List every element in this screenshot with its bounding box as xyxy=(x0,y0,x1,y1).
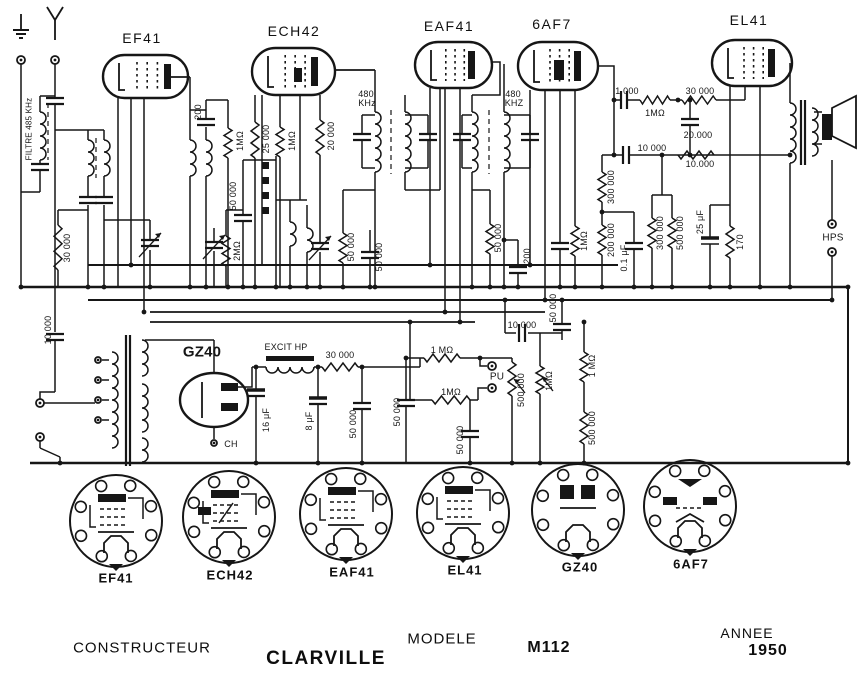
socket-keyway xyxy=(334,529,358,546)
tube-envelope xyxy=(252,48,335,95)
junction-dot xyxy=(788,285,793,290)
component-label: 0.1 μF xyxy=(619,245,629,272)
socket-pin xyxy=(76,530,87,541)
junction-dot xyxy=(316,461,321,466)
junction-dot xyxy=(408,320,413,325)
junction-dot xyxy=(360,365,365,370)
junction-dot xyxy=(58,461,63,466)
resistor xyxy=(571,226,579,256)
junction-dot xyxy=(305,285,310,290)
component-label: 10.000 xyxy=(508,320,537,330)
filled-element xyxy=(262,162,269,169)
component-label: 50 000 xyxy=(548,294,558,323)
junction-dot xyxy=(428,263,433,268)
junction-dot xyxy=(478,356,483,361)
filled-element xyxy=(266,356,314,361)
socket-pin xyxy=(472,542,483,553)
junction-dot xyxy=(503,298,508,303)
socket-pin xyxy=(587,539,598,550)
socket-pin xyxy=(558,540,569,551)
component-label: 1 MΩ xyxy=(431,345,454,355)
terminal-center xyxy=(54,59,57,62)
component-label: 50 000 xyxy=(493,224,503,253)
socket-label-el41: EL41 xyxy=(447,563,482,578)
filled-element xyxy=(328,487,356,495)
component-label: 200 000 xyxy=(606,223,616,257)
junction-dot xyxy=(373,285,378,290)
socket-pin xyxy=(145,501,156,512)
socket-pin xyxy=(492,493,503,504)
schematic-canvas: FILTRE 485 KHz30 00010 0002001MΩ25 0001M… xyxy=(0,0,868,691)
filled-element xyxy=(221,383,238,391)
coil xyxy=(142,384,148,432)
junction-dot xyxy=(360,461,365,466)
junction-dot xyxy=(86,285,91,290)
junction-dot xyxy=(458,320,463,325)
component-label: 10 000 xyxy=(43,316,53,345)
wire xyxy=(320,498,326,520)
component-label: 1 000 xyxy=(615,86,639,96)
component-label: 30 000 xyxy=(326,350,355,360)
socket-pin xyxy=(258,497,269,508)
socket-keyway xyxy=(451,528,475,545)
junction-dot xyxy=(632,285,637,290)
terminal-center xyxy=(491,387,494,390)
wire xyxy=(40,448,60,457)
socket-pin xyxy=(538,519,549,530)
junction-dot xyxy=(612,98,617,103)
coil xyxy=(266,367,314,373)
terminal-center xyxy=(97,379,100,382)
component-label: 170 xyxy=(735,234,745,250)
junction-dot xyxy=(254,461,259,466)
resistor xyxy=(424,354,460,362)
wire xyxy=(478,388,487,400)
junction-dot xyxy=(288,285,293,290)
junction-dot xyxy=(846,461,851,466)
component-label: EXCIT HP xyxy=(265,342,308,352)
component-label: 20 000 xyxy=(326,122,336,151)
socket-outline-el41 xyxy=(417,467,509,559)
filled-element xyxy=(98,494,126,502)
socket-pin xyxy=(238,546,249,557)
junction-dot xyxy=(188,285,193,290)
socket-pin xyxy=(188,497,199,508)
junction-dot xyxy=(558,285,563,290)
socket-keyway xyxy=(217,532,241,549)
component-label: 8 μF xyxy=(304,412,314,431)
socket-pin xyxy=(355,543,366,554)
socket-pin xyxy=(326,544,337,555)
year-value: 1950 xyxy=(748,642,788,660)
component-label: 20.000 xyxy=(684,130,713,140)
component-label: 50 000 xyxy=(392,398,402,427)
socket-pin xyxy=(699,465,710,476)
socket-outline-eaf41 xyxy=(300,468,392,560)
component-label: KHZ xyxy=(505,98,524,108)
wire xyxy=(472,62,500,95)
junction-dot xyxy=(728,285,733,290)
component-label: GZ40 xyxy=(183,344,221,361)
terminal-center xyxy=(831,223,834,226)
socket-pin xyxy=(238,476,249,487)
filled-element xyxy=(445,486,473,494)
socket-label-gz40: GZ40 xyxy=(562,560,599,575)
component-label: 1MΩ xyxy=(544,371,554,391)
component-label: FILTRE 485 KHz xyxy=(25,98,34,161)
component-label: 1 MΩ xyxy=(587,355,597,378)
socket-pin xyxy=(443,473,454,484)
coil xyxy=(142,340,148,376)
filled-element xyxy=(221,403,238,411)
filled-element xyxy=(198,507,211,515)
resistor xyxy=(251,122,259,158)
filled-element xyxy=(262,177,269,184)
component-label: 50 000 xyxy=(374,243,384,272)
socket-pin xyxy=(558,470,569,481)
junction-dot xyxy=(318,285,323,290)
socket-label-eaf41: EAF41 xyxy=(329,565,374,580)
component-label: 1MΩ xyxy=(287,131,297,151)
socket-pin xyxy=(699,535,710,546)
wire xyxy=(55,7,63,20)
wire xyxy=(437,497,443,519)
component-label: 500 000 xyxy=(587,411,597,445)
terminal-center xyxy=(97,419,100,422)
filled-element xyxy=(663,497,677,505)
socket-outline-6af7 xyxy=(644,460,736,552)
filled-element xyxy=(768,49,775,77)
wire xyxy=(47,7,55,20)
socket-label-ef41: EF41 xyxy=(98,571,133,586)
socket-pin xyxy=(587,469,598,480)
component-label: 25 μF xyxy=(695,210,705,234)
socket-pin xyxy=(96,481,107,492)
terminal-center xyxy=(491,365,494,368)
component-label: 500.000 xyxy=(516,373,526,407)
junction-dot xyxy=(560,298,565,303)
socket-pin xyxy=(608,519,619,530)
tube-label-ech42: ECH42 xyxy=(268,23,321,39)
socket-pin xyxy=(375,494,386,505)
socket-pin xyxy=(75,501,86,512)
component-label: 1MΩ xyxy=(645,108,665,118)
filled-element xyxy=(262,207,269,214)
socket-pin xyxy=(649,486,660,497)
constructeur-label: CONSTRUCTEUR xyxy=(73,640,211,657)
socket-pin xyxy=(96,551,107,562)
junction-dot xyxy=(543,298,548,303)
socket-pin xyxy=(259,526,270,537)
resistor xyxy=(598,225,606,255)
socket-pin xyxy=(422,493,433,504)
resistor xyxy=(678,151,714,159)
tube-envelope xyxy=(712,40,792,86)
junction-dot xyxy=(226,285,231,290)
resistor xyxy=(598,172,606,202)
coil xyxy=(190,140,196,176)
wire xyxy=(728,48,734,78)
component-label: 2MΩ xyxy=(232,241,242,261)
component-label: KHz xyxy=(358,98,376,108)
junction-dot xyxy=(846,285,851,290)
wire xyxy=(475,490,490,511)
junction-dot xyxy=(404,356,409,361)
tube-label-el41: EL41 xyxy=(730,12,769,28)
resistor xyxy=(682,96,716,104)
junction-dot xyxy=(688,153,693,158)
junction-dot xyxy=(316,365,321,370)
filled-element xyxy=(581,485,595,499)
junction-dot xyxy=(516,285,521,290)
speaker-cone xyxy=(832,96,856,148)
socket-pin xyxy=(670,466,681,477)
coil xyxy=(88,140,94,176)
filled-element xyxy=(468,51,475,79)
socket-label-ech42: ECH42 xyxy=(207,568,254,583)
socket-pin xyxy=(125,550,136,561)
model-number: M112 xyxy=(527,639,570,657)
socket-pin xyxy=(650,515,661,526)
component-label: 500 000 xyxy=(675,216,685,250)
filled-element xyxy=(822,114,832,140)
component-label: 200 xyxy=(522,248,532,264)
socket-pin xyxy=(125,480,136,491)
coil xyxy=(142,438,148,462)
socket-outline-ef41 xyxy=(70,475,162,567)
component-label: 50 000 xyxy=(348,410,358,439)
socket-keyway xyxy=(104,536,128,553)
socket-pin xyxy=(146,530,157,541)
component-label: 300 000 xyxy=(606,170,616,204)
socket-pin xyxy=(537,490,548,501)
socket-pin xyxy=(305,494,316,505)
coil xyxy=(405,112,411,172)
tube-label-6af7: 6AF7 xyxy=(532,16,571,32)
junction-dot xyxy=(708,285,713,290)
tube-envelope-gz40 xyxy=(180,373,248,427)
annee-label: ANNEE xyxy=(720,625,773,641)
coil xyxy=(206,140,212,176)
socket-pin xyxy=(189,526,200,537)
junction-dot xyxy=(676,98,681,103)
component-label: HPS xyxy=(822,233,843,244)
junction-dot xyxy=(253,285,258,290)
junction-dot xyxy=(788,153,793,158)
junction-dot xyxy=(502,285,507,290)
junction-dot xyxy=(538,461,543,466)
wire xyxy=(598,66,614,100)
junction-dot xyxy=(204,285,209,290)
junction-dot xyxy=(368,285,373,290)
tube-envelope xyxy=(415,42,492,88)
wire xyxy=(40,392,55,399)
component-label: 50 000 xyxy=(455,426,465,455)
socket-pin xyxy=(493,522,504,533)
wire xyxy=(119,63,125,90)
filled-element xyxy=(262,192,269,199)
resistor xyxy=(276,127,284,157)
junction-dot xyxy=(600,285,605,290)
socket-label-6af7: 6AF7 xyxy=(673,557,709,572)
terminal-center xyxy=(20,59,23,62)
junction-dot xyxy=(129,263,134,268)
junction-dot xyxy=(470,285,475,290)
component-label: 200 xyxy=(193,104,203,120)
arrow-head xyxy=(325,236,331,241)
socket-pin xyxy=(209,547,220,558)
junction-dot xyxy=(650,285,655,290)
junction-dot xyxy=(148,285,153,290)
component-label: 1MΩ xyxy=(579,231,589,251)
socket-outline-ech42 xyxy=(183,471,275,563)
coil xyxy=(40,112,46,160)
component-label: 1MΩ xyxy=(235,131,245,151)
socket-pin xyxy=(306,523,317,534)
arrow-head xyxy=(219,235,225,240)
junction-dot xyxy=(600,210,605,215)
socket-pin xyxy=(607,490,618,501)
junction-dot xyxy=(510,461,515,466)
component-label: 30 000 xyxy=(62,234,72,263)
socket-pin xyxy=(719,486,730,497)
terminal-center xyxy=(39,436,42,439)
wire xyxy=(358,491,373,512)
junction-dot xyxy=(241,285,246,290)
coil xyxy=(290,222,296,246)
junction-dot xyxy=(488,285,493,290)
socket-pin xyxy=(670,536,681,547)
junction-dot xyxy=(443,310,448,315)
component-label: 300 000 xyxy=(655,216,665,250)
junction-dot xyxy=(341,285,346,290)
component-label: 50 000 xyxy=(346,233,356,262)
filled-element xyxy=(554,60,564,80)
coil xyxy=(112,352,118,448)
junction-dot xyxy=(254,365,259,370)
junction-dot xyxy=(582,320,587,325)
modele-label: MODELE xyxy=(407,631,476,648)
resistor xyxy=(432,396,470,404)
junction-dot xyxy=(102,285,107,290)
socket-keyway xyxy=(566,525,590,542)
filled-element xyxy=(574,51,581,81)
junction-dot xyxy=(274,285,279,290)
component-label: PU xyxy=(490,372,504,383)
component-label: 10 000 xyxy=(638,143,667,153)
tube-label-ef41: EF41 xyxy=(122,30,161,46)
socket-pin xyxy=(326,474,337,485)
filled-element xyxy=(703,497,717,505)
junction-dot xyxy=(670,285,675,290)
terminal-center xyxy=(97,399,100,402)
wire xyxy=(128,498,143,519)
resistor xyxy=(640,96,670,104)
junction-dot xyxy=(573,285,578,290)
resistor xyxy=(726,226,734,258)
socket-pin xyxy=(472,472,483,483)
socket-pin xyxy=(376,523,387,534)
resistor xyxy=(224,128,232,158)
wire xyxy=(534,50,540,82)
socket-pin xyxy=(720,515,731,526)
junction-dot xyxy=(758,285,763,290)
filled-element xyxy=(211,490,239,498)
filled-element xyxy=(311,57,318,86)
socket-pin xyxy=(443,543,454,554)
filled-element xyxy=(560,485,574,499)
wire xyxy=(90,505,96,527)
resistor xyxy=(222,236,230,266)
component-label: 1MΩ xyxy=(441,387,461,397)
terminal-center xyxy=(831,251,834,254)
coil xyxy=(812,108,818,156)
junction-dot xyxy=(688,98,693,103)
component-label: 50 000 xyxy=(228,182,238,211)
junction-dot xyxy=(612,153,617,158)
wire xyxy=(431,50,437,80)
socket-keyway xyxy=(678,521,702,538)
wire xyxy=(268,56,274,87)
socket-outline-gz40 xyxy=(532,464,624,556)
junction-dot xyxy=(19,285,24,290)
coil xyxy=(375,112,381,172)
socket-pin xyxy=(355,473,366,484)
arrow-head xyxy=(155,233,161,238)
brand-name: CLARVILLE xyxy=(266,648,386,670)
socket-pin xyxy=(423,522,434,533)
wire xyxy=(241,494,256,515)
junction-dot xyxy=(660,153,665,158)
socket-pin xyxy=(209,477,220,488)
coil xyxy=(307,228,313,252)
coil xyxy=(504,112,510,172)
terminal-center xyxy=(213,442,216,445)
terminal-center xyxy=(39,402,42,405)
junction-dot xyxy=(468,461,473,466)
resistor xyxy=(322,363,358,371)
resistor xyxy=(316,120,324,155)
coil xyxy=(472,112,478,172)
component-label: 25 000 xyxy=(261,125,271,154)
junction-dot xyxy=(142,310,147,315)
filled-element xyxy=(294,68,302,82)
component-label: 10.000 xyxy=(686,159,715,169)
coil xyxy=(104,140,110,176)
component-label: 16 μF xyxy=(261,408,271,432)
tube-label-eaf41: EAF41 xyxy=(424,18,474,34)
component-label: 30 000 xyxy=(686,86,715,96)
resistor xyxy=(536,366,544,394)
junction-dot xyxy=(830,298,835,303)
component-label: CH xyxy=(224,439,237,449)
terminal-center xyxy=(97,359,100,362)
